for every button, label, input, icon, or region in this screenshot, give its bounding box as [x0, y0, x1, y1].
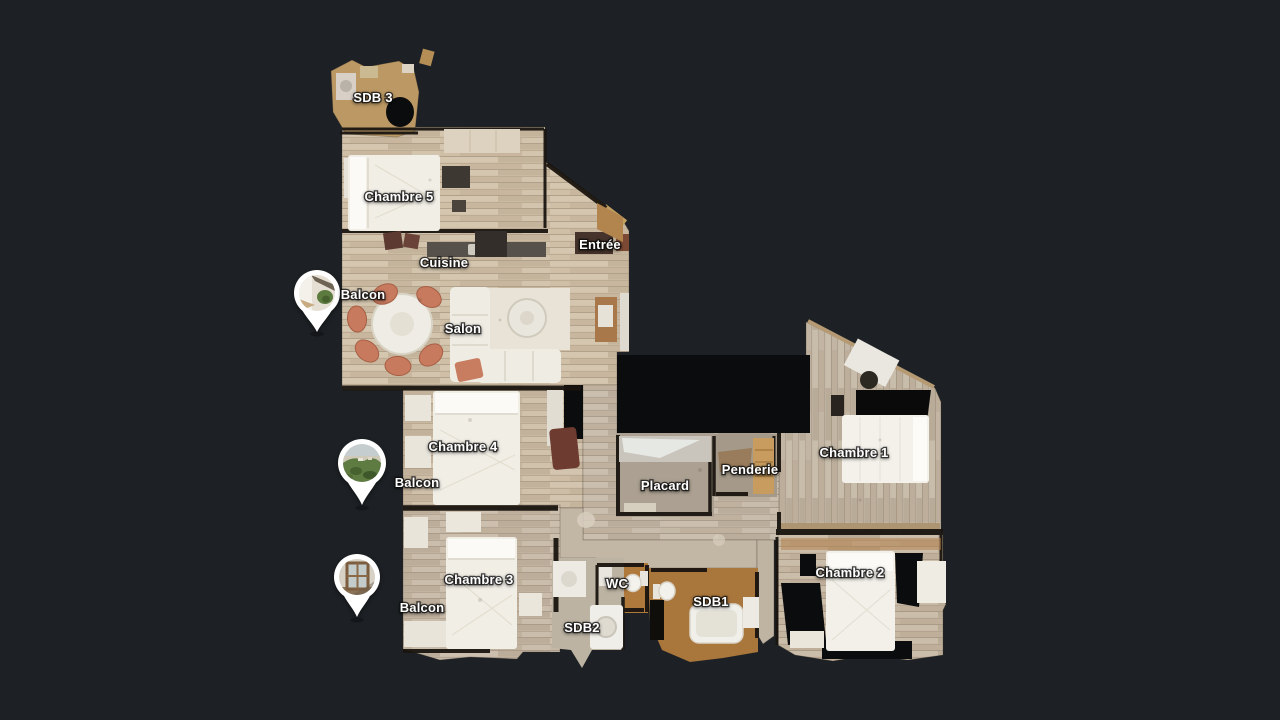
desk-chair — [860, 371, 878, 389]
pin-shadow — [310, 332, 324, 337]
room-label-chambre-2: Chambre 2 — [816, 565, 885, 580]
room-label-chambre-3: Chambre 3 — [445, 572, 514, 587]
viewer-stage: SDB 3 Chambre 5 Entrée Cuisine Salon Cha… — [0, 0, 1280, 720]
room-label-chambre-4: Chambre 4 — [429, 439, 499, 454]
room-label-salon: Salon — [445, 321, 481, 336]
dresser — [405, 436, 431, 468]
nightstand — [405, 395, 431, 421]
sofa-bottom — [477, 349, 561, 383]
scan-artifact — [419, 49, 434, 67]
washbasin — [743, 597, 759, 628]
marker-label-balcon-3[interactable]: Balcon — [400, 600, 445, 615]
toilet-sdb1 — [659, 582, 675, 600]
bench — [790, 631, 824, 648]
balcony-marker-3[interactable] — [334, 554, 380, 617]
balcony-photo-1 — [299, 275, 335, 311]
room-label-chambre-5: Chambre 5 — [365, 189, 434, 204]
armchair-red — [549, 427, 580, 471]
dresser — [917, 561, 946, 603]
room-label-placard: Placard — [641, 478, 689, 493]
marker-label-balcon-2[interactable]: Balcon — [395, 475, 440, 490]
nightstand — [831, 395, 844, 416]
dresser-top — [446, 512, 481, 532]
balcony-photo-3 — [339, 559, 375, 595]
kitchen-appliance — [475, 231, 507, 257]
desk-chambre-5 — [442, 166, 470, 188]
sink-sdb3 — [360, 66, 378, 78]
floorplan-canvas[interactable]: SDB 3 Chambre 5 Entrée Cuisine Salon Cha… — [0, 0, 1280, 720]
room-label-entree: Entrée — [579, 237, 621, 252]
room-label-sdb2: SDB2 — [564, 620, 599, 635]
balcony-marker-2[interactable] — [338, 439, 386, 505]
room-label-chambre-1: Chambre 1 — [820, 445, 889, 460]
room-label-penderie: Penderie — [722, 462, 779, 477]
pin-shadow — [355, 506, 369, 511]
radiator — [620, 293, 629, 351]
wardrobe-chambre-5 — [444, 129, 520, 153]
balcony-marker-1[interactable] — [294, 270, 340, 332]
room-label-wc: WC — [606, 576, 628, 591]
marker-label-balcon-1[interactable]: Balcon — [341, 287, 386, 302]
room-label-sdb-3: SDB 3 — [353, 90, 392, 105]
pin-shadow — [350, 618, 364, 623]
balcony-photo-2 — [343, 444, 381, 482]
room-label-sdb1: SDB1 — [693, 594, 728, 609]
nightstand — [519, 593, 542, 616]
room-label-cuisine: Cuisine — [420, 255, 468, 270]
